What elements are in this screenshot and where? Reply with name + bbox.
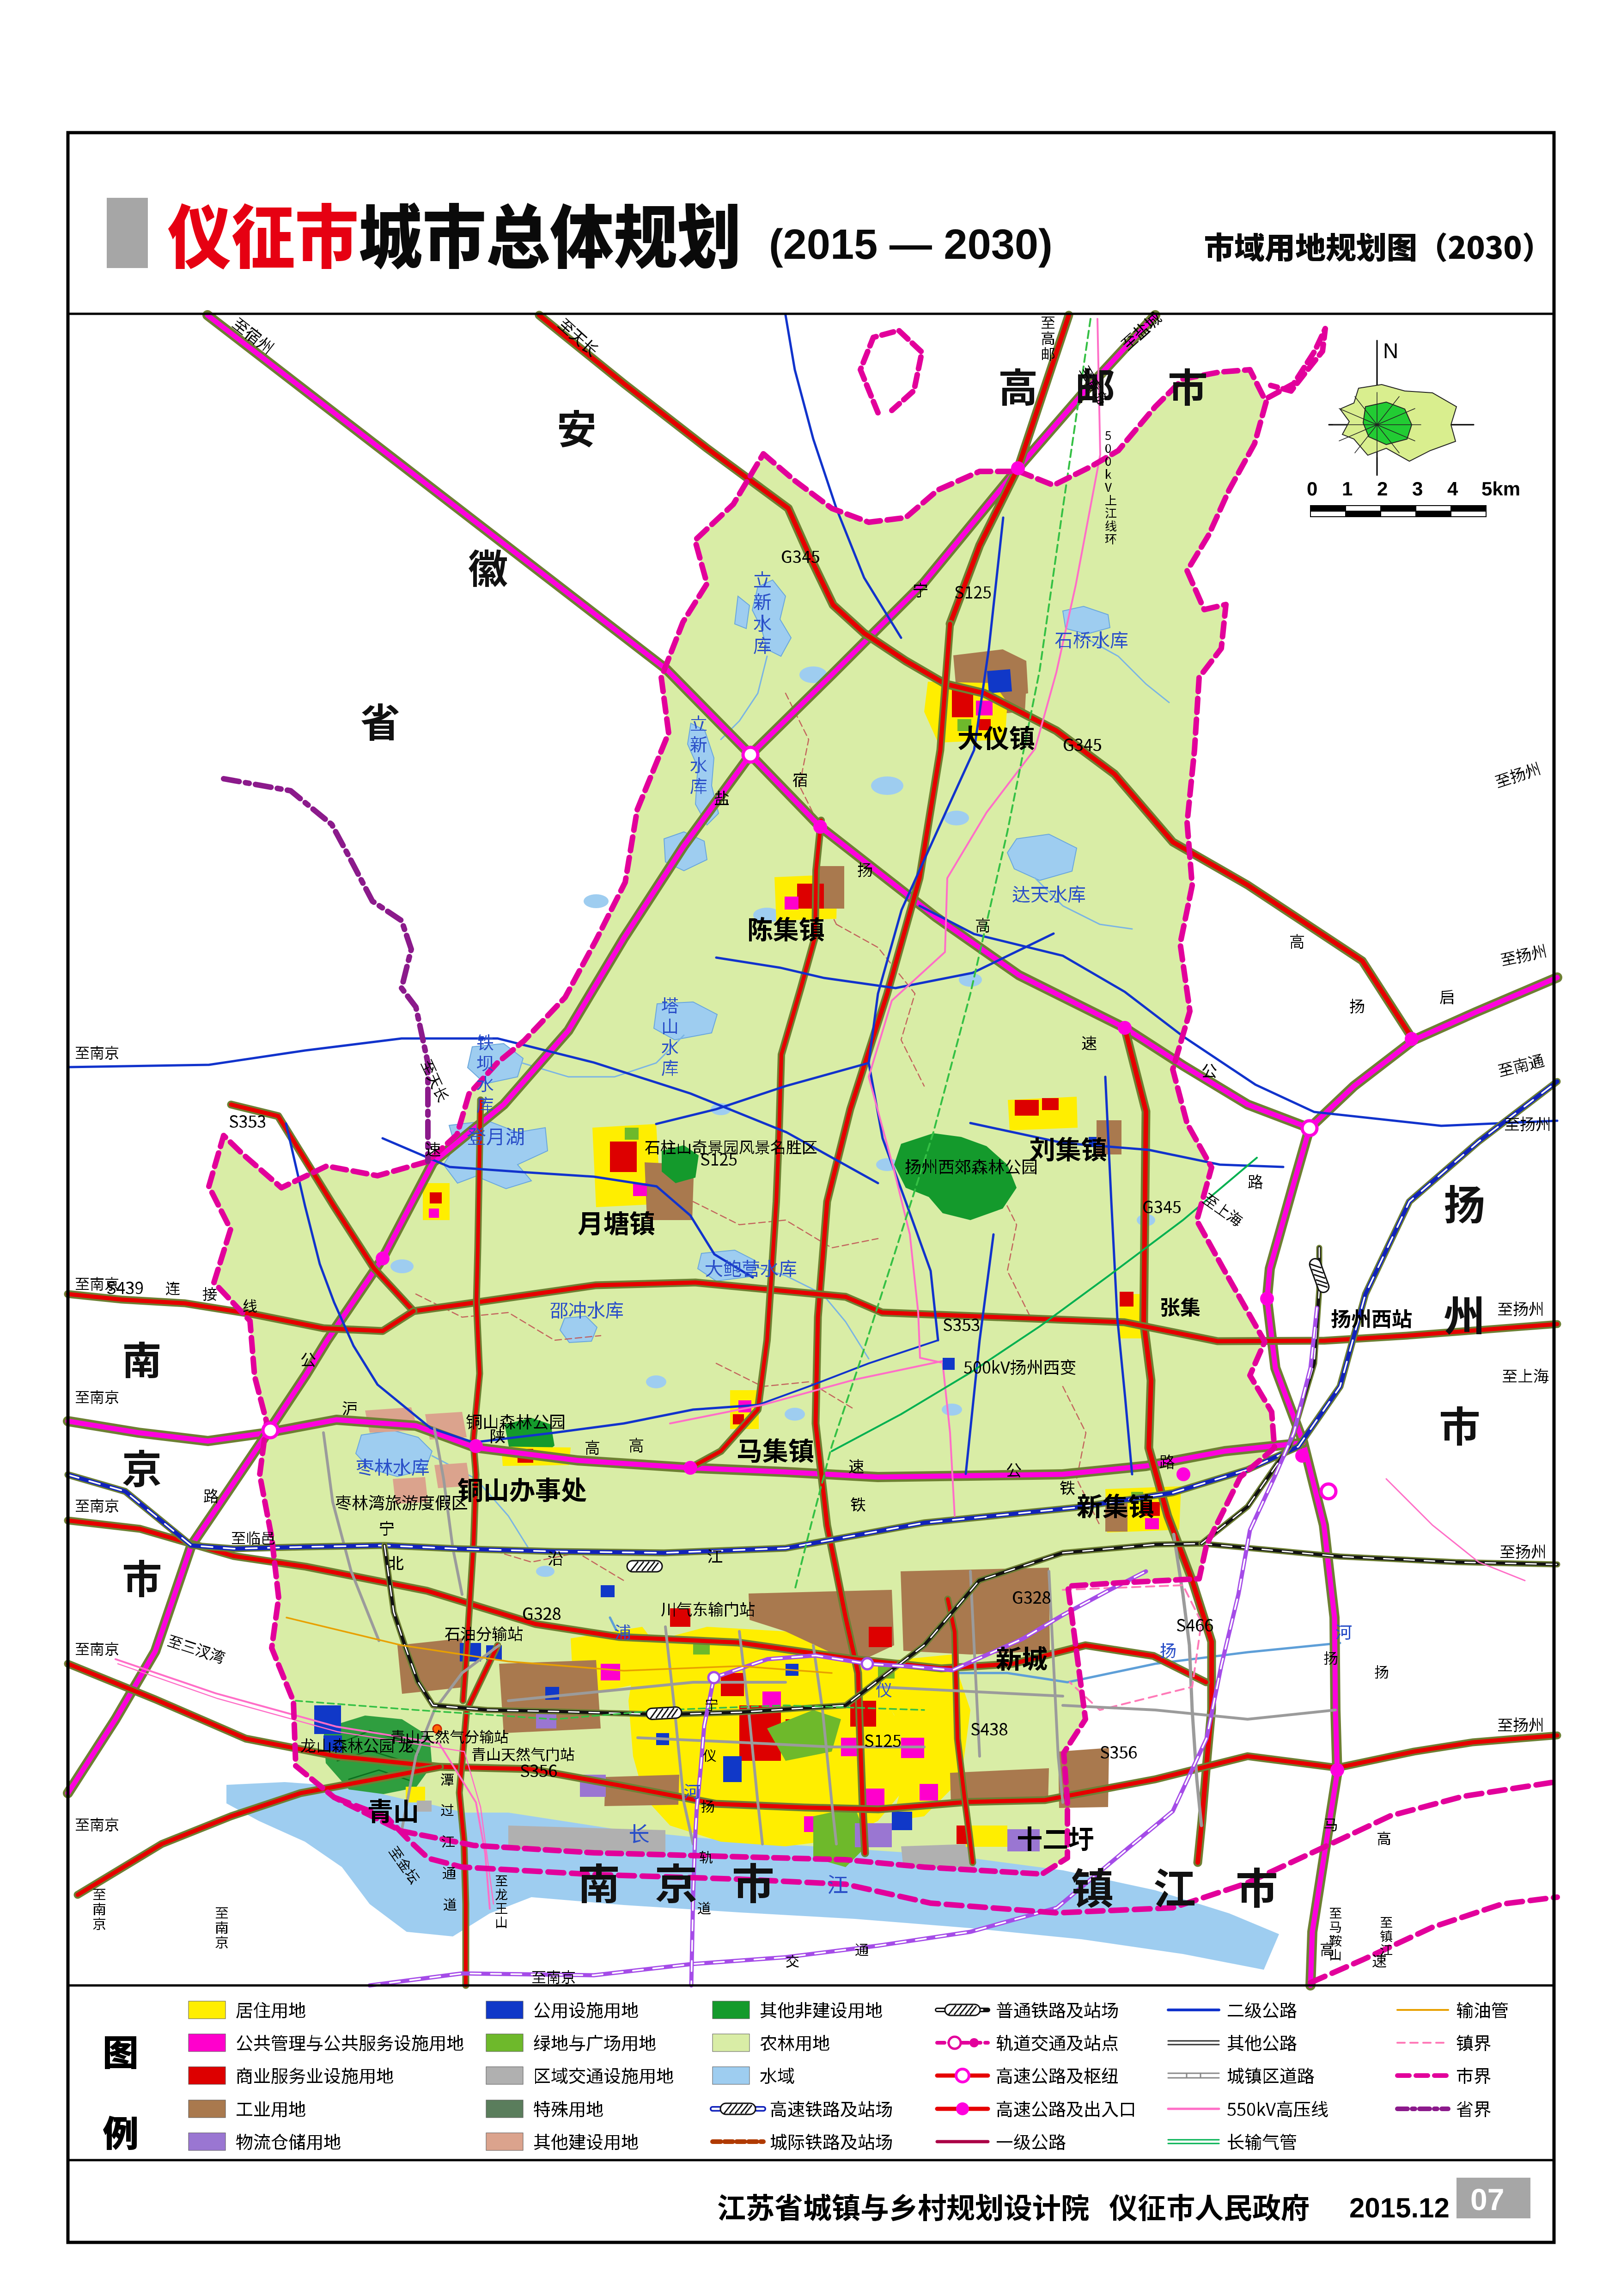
svg-text:(2015 — 2030): (2015 — 2030) <box>769 221 1053 268</box>
svg-text:5km: 5km <box>1481 478 1520 500</box>
svg-text:1: 1 <box>1342 478 1353 500</box>
svg-text:07: 07 <box>1470 2182 1504 2217</box>
svg-text:N: N <box>1383 339 1398 363</box>
svg-text:4: 4 <box>1447 478 1458 500</box>
svg-text:3: 3 <box>1412 478 1423 500</box>
svg-text:0: 0 <box>1307 478 1317 500</box>
svg-text:2: 2 <box>1377 478 1388 500</box>
svg-text:2015.12: 2015.12 <box>1349 2192 1450 2223</box>
